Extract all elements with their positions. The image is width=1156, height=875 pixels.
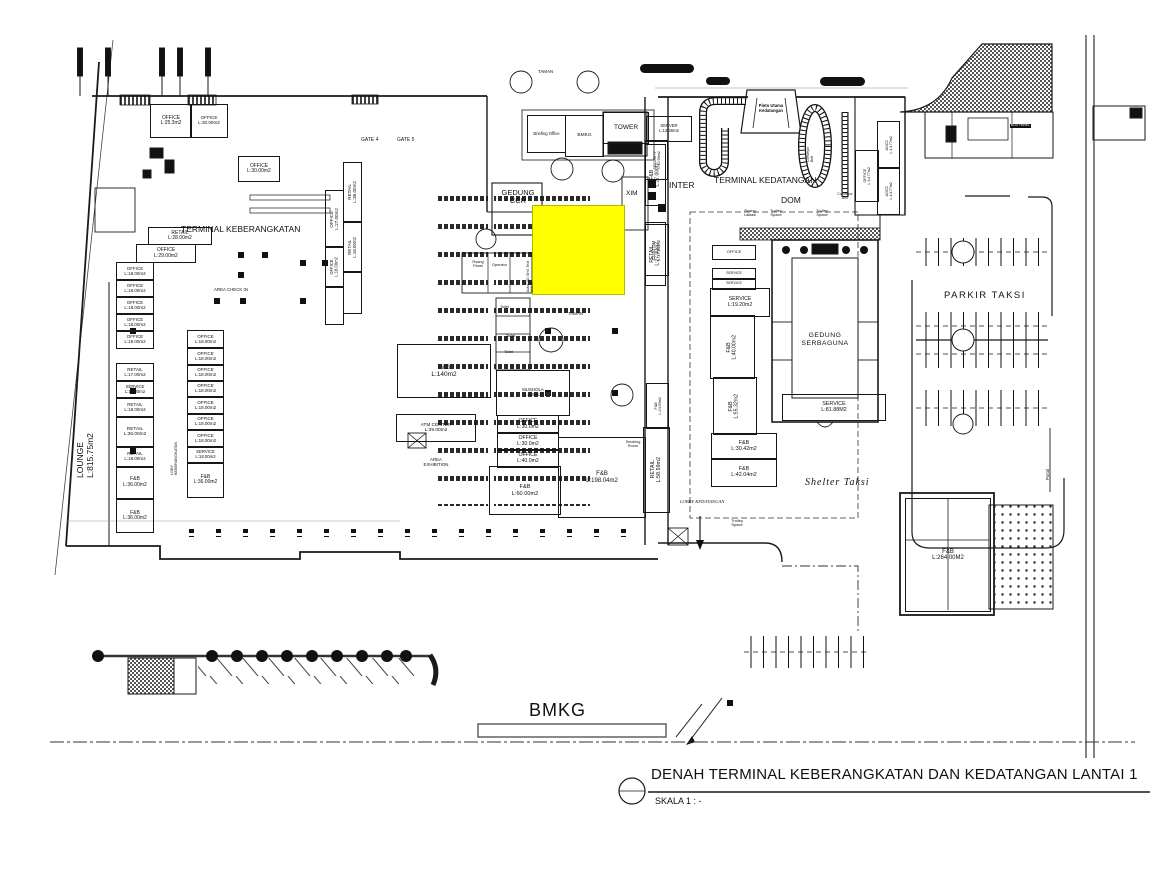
room-tower: TOWER [603,112,649,144]
room-security: SECURITYL:12.96m2 [645,140,668,180]
room-office: OFFICEL:29.00m2 [136,244,196,263]
ruang-panel-label: Ruang Panel [468,260,488,269]
area-exhibition-label: AREA EXHIBITION [416,458,456,468]
terminal-keberangkatan-label: TERMINAL KEBERANGKATAN [181,225,300,235]
toilet-label: Toilet [500,305,509,309]
room-f-b: F&BL:24.93m2 [646,383,669,429]
gedung-ccr-label: GEDUNG CCR [496,189,540,206]
room-office: OFFICEL:18.00m2 [325,247,344,287]
taman-label: TAMAN [538,70,553,75]
room-retail: RETAILL:58.59m2 [643,427,670,513]
portal-label: Portal [1046,469,1051,480]
room-unit [343,272,362,314]
room-f-b: F&BL:36.00m2 [116,499,154,533]
room-f-b: F&BL:42.04m2 [711,458,777,487]
room-f-b: F&BL:36.00m2 [187,462,224,498]
lobby-kedatangan-label: LOBBY KEDATANGAN [680,499,724,504]
floor-plan-canvas: DENAH TERMINAL KEBERANGKATAN DAN KEDATAN… [0,0,1156,875]
room-f-b: F&BL:40.00m2 [710,315,755,379]
trolley-space-label: Trolley Space [809,209,835,218]
conveyor-belt-label: Conveyor Belt [806,147,814,162]
terminal-kedatangan-label: TERMINAL KEDATANGAN [714,176,816,186]
drawing-scale: SKALA 1 : - [655,796,702,806]
conveyor-belt-label: Conveyor Belt [830,192,860,200]
room-office: OFFICEL:27.00m2 [325,190,344,247]
inter-label: INTER [669,181,695,191]
pintu-utama-label: Pintu Utama Kedatangan [748,104,794,113]
room-service: SERVICEL:19.20m2 [710,288,770,317]
room-bmkg: BMKG [565,115,604,157]
room-f-b: F&BL:198.04m2 [558,437,646,518]
room-f-b: F&BL:140m2 [397,344,491,398]
box-panel-label: BOX PANEL [1010,124,1031,128]
room-retail: RETAILL:36.00m2 [343,162,362,222]
lounge-label: LOUNGE L:815.75m2 [76,433,95,478]
room-briefing-office: Briefing Office [527,115,566,153]
loby-keberangkatan-label: LOBY KEBERANGKATAN [170,442,179,475]
room-service: SERVICEL:81.88M2 [782,394,886,421]
dom-label: DOM [781,196,801,206]
room-aocc: AOCCL:14.77m2 [877,167,900,215]
room-retail: RETAILL:18.00m2 [116,397,154,418]
gate-5-label: GATE 5 [397,138,414,144]
room-office: OFFICE [712,245,756,260]
xim-label: XIM [626,190,638,197]
highlighted-room [532,205,625,295]
taman-label: TAMAN [568,312,583,317]
room-office: OFFICEL:30.00m2 [238,156,280,182]
room-office: OFFICEL:25.3m2 [150,104,192,138]
bmkg-site-label: BMKG [529,700,586,720]
room-retail: RETAILL:18.00m2 [116,446,154,468]
trolley-space-label: Trolley Space [724,519,750,528]
drawing-title: DENAH TERMINAL KEBERANGKATAN DAN KEDATAN… [651,766,1138,783]
room-f-b: F&BL:36.00m2 [116,466,154,499]
room-f-b: F&BL:30.42m2 [711,433,777,460]
room-retail: RETAILL:36.00m2 [116,416,154,448]
autocad-artifact-label: AutoCAD SHX Text 618 X [526,261,534,292]
room-server: SERVERL:13.36m2 [646,116,692,142]
room-office: OFFICEL:30.00m2 [190,104,228,138]
room-f-b: F&BL:55.32m2 [713,377,757,435]
room-custom: CUSTOML:17.86m2 [645,224,669,276]
gate-4-label: GATE 4 [361,138,378,144]
room-retail: RETAILL:18.00m2 [343,222,362,272]
trolley-space-label: Trolley Space [763,209,789,218]
room-atm-center: ATM CENTERL:39.00m2 [396,414,476,442]
smoking-room-label: Smoking Room [620,440,646,449]
room-f-b: F&BL:60.00m2 [489,466,561,515]
room-unit [325,287,344,325]
parkir-taksi-label: PARKIR TAKSI [944,291,1026,302]
toilet-label: Toilet [506,334,515,338]
room-office: OFFICEL:18.00m2 [116,330,154,349]
ruang-laktasi-label: Ruang Laktasi [739,209,761,218]
operator-label: Operator [492,263,507,267]
room-f-b: F&BL:264.00M2 [905,498,991,612]
toilet-label: Toilet [504,350,513,354]
area-checkin-label: AREA CHECK IN [214,288,248,293]
room-aocc: AOCCL:14.77m2 [877,121,900,169]
gedung-serbaguna-label: GEDUNG SERBAGUNA [794,332,856,347]
shelter-taksi-label: Shelter Taksi [805,477,870,488]
room-mushola: MUSHOLAL:100m2 [496,370,570,416]
